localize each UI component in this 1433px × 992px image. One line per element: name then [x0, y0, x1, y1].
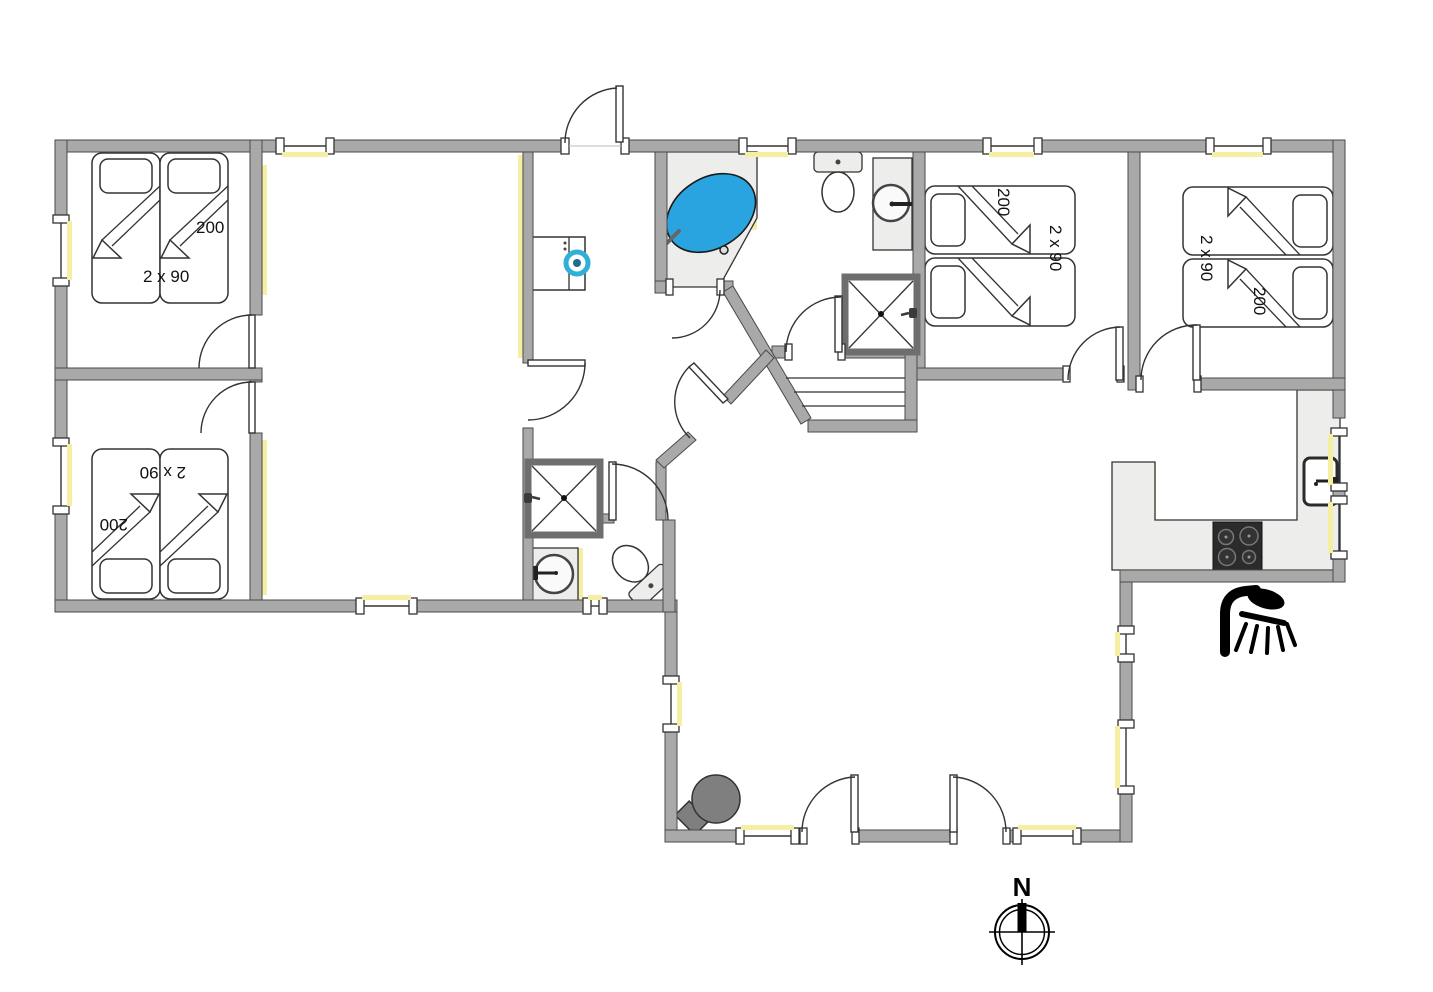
- window: [1013, 825, 1081, 844]
- door-hall-to-room: [528, 360, 585, 420]
- window: [739, 138, 796, 157]
- washing-machine-icon: [531, 237, 588, 290]
- door-bedroom-far-right: [1136, 325, 1201, 392]
- window: [53, 215, 72, 286]
- window: [1206, 138, 1271, 157]
- window: [1115, 720, 1134, 794]
- window: [663, 676, 682, 732]
- washbasin-icon: [528, 548, 578, 602]
- entrance-hall: [531, 237, 588, 290]
- bed-length-label: 200: [1250, 287, 1269, 315]
- window: [53, 438, 72, 514]
- toilet-icon: [814, 152, 862, 212]
- door-bedroom-bottom-left: [201, 382, 255, 433]
- shower-handle-icon: [524, 493, 532, 503]
- window: [983, 138, 1042, 157]
- bed-length-label: 200: [196, 218, 224, 237]
- tub-drain-icon: [720, 246, 728, 254]
- compass-rose-icon: N: [989, 872, 1055, 965]
- terrace-door-left: [800, 775, 859, 844]
- washbasin-icon: [873, 158, 912, 250]
- wood-stove-icon: [675, 775, 740, 835]
- window: [736, 825, 799, 844]
- stairs: [786, 378, 905, 406]
- outdoor-shower-icon: [1225, 585, 1295, 653]
- shower-cabin: [845, 277, 917, 352]
- floor-plan-svg: 200 2 x 90 2 x 90 200 200 2 x 90 2 x 90 …: [0, 0, 1433, 992]
- bed-width-label: 2 x 90: [1046, 225, 1065, 271]
- living-room: [675, 775, 740, 835]
- door-bedroom-mid-right: [1063, 327, 1124, 382]
- bathroom-main: [652, 152, 912, 287]
- floor-plan-page: 200 2 x 90 2 x 90 200 200 2 x 90 2 x 90 …: [0, 0, 1433, 992]
- window: [276, 138, 334, 157]
- bed-width-label: 2 x 90: [1197, 235, 1216, 281]
- door-bath-main: [666, 279, 724, 338]
- window: [1115, 626, 1134, 662]
- window: [356, 595, 417, 614]
- terrace-door-right: [950, 775, 1010, 844]
- bed-length-label: 200: [994, 188, 1013, 216]
- bed-width-label: 2 x 90: [140, 463, 186, 482]
- north-label: N: [1013, 872, 1032, 902]
- bed-width-label: 2 x 90: [143, 267, 189, 286]
- kitchen: [1112, 390, 1340, 570]
- door-bedroom-top-left: [199, 315, 255, 368]
- shower-cabin: [524, 462, 600, 535]
- entrance-door: [561, 86, 629, 154]
- cooktop-icon: [1213, 522, 1262, 570]
- shower-handle-icon: [909, 308, 917, 318]
- door-wc: [785, 296, 845, 360]
- bed-length-label: 200: [100, 515, 128, 534]
- door-hall-diagonal: [675, 363, 728, 438]
- window: [583, 595, 607, 614]
